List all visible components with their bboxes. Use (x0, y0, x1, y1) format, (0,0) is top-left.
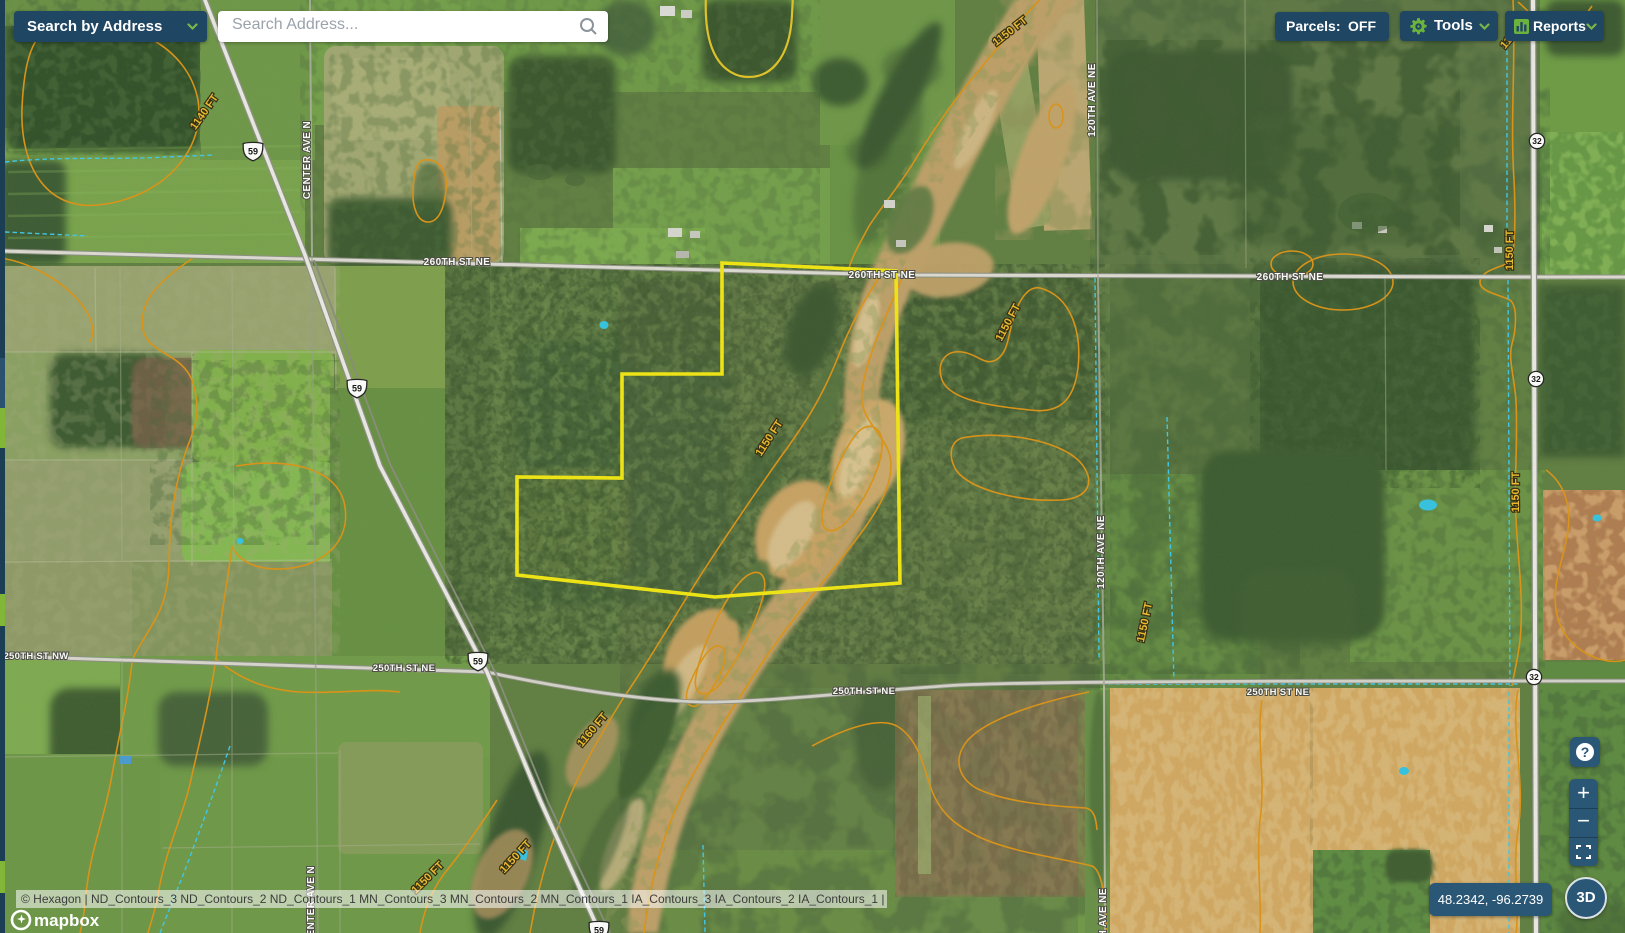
svg-text:mapbox: mapbox (34, 911, 100, 930)
